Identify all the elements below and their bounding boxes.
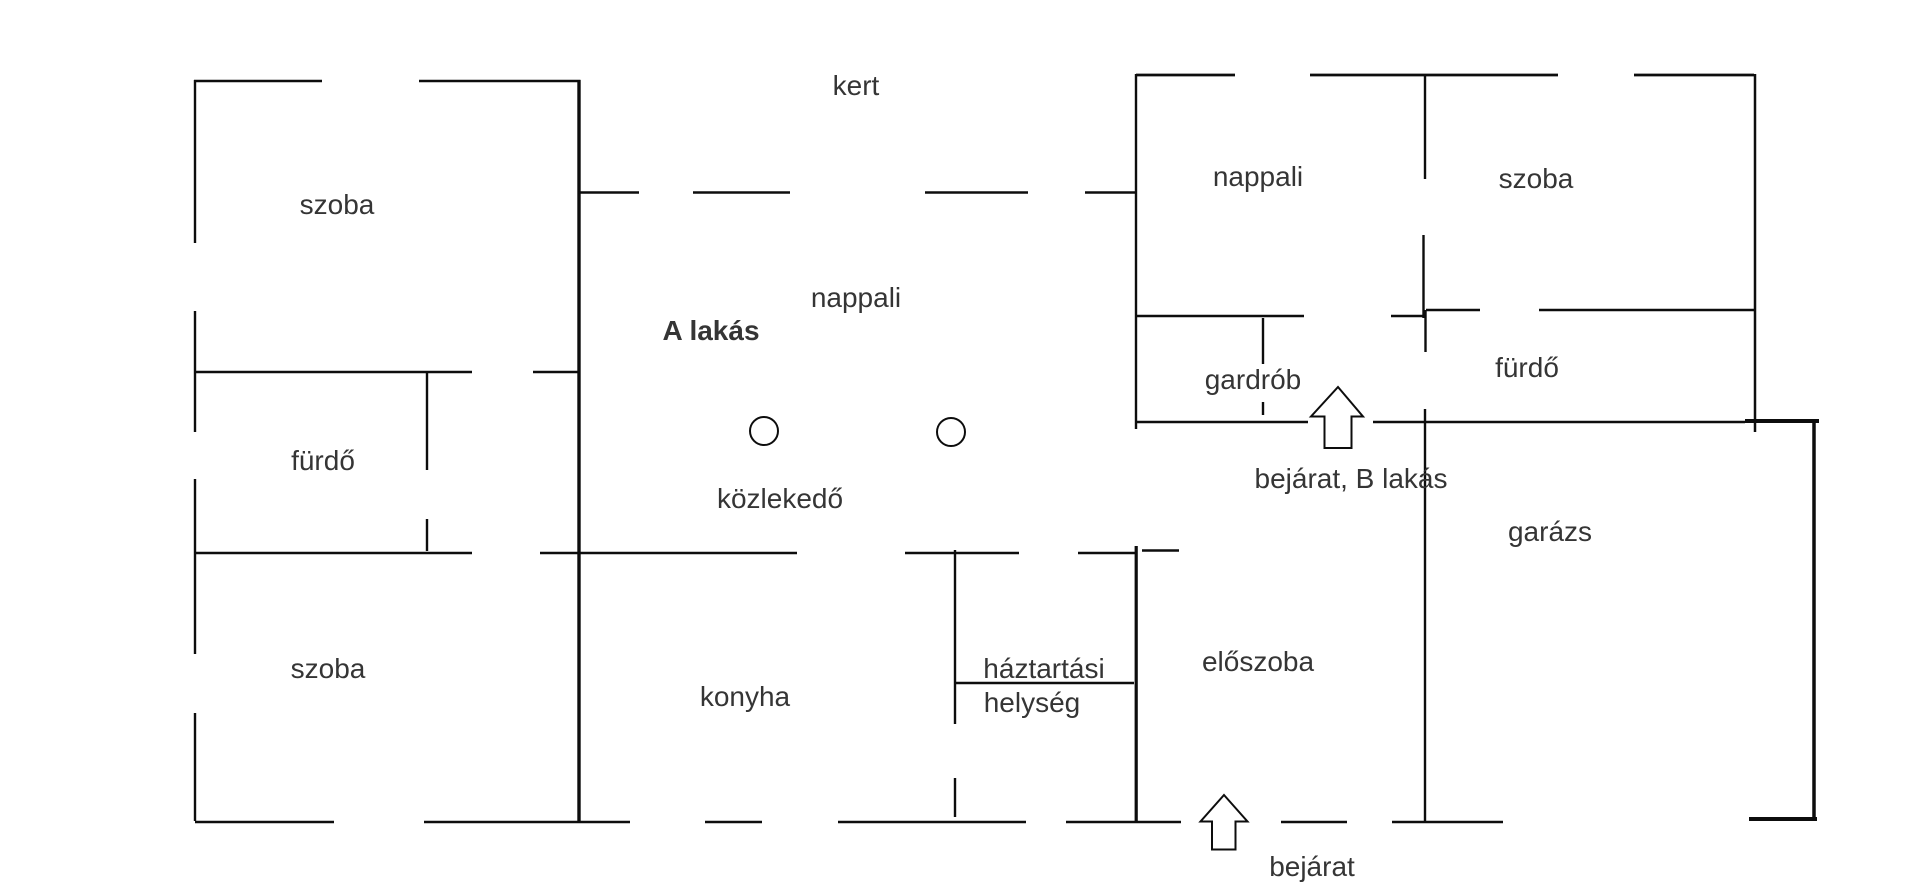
svg-text:fürdő: fürdő	[291, 445, 355, 476]
svg-text:szoba: szoba	[291, 653, 366, 684]
svg-text:háztartási: háztartási	[983, 653, 1104, 684]
svg-text:A lakás: A lakás	[662, 315, 759, 346]
svg-text:szoba: szoba	[300, 189, 375, 220]
svg-text:előszoba: előszoba	[1202, 646, 1315, 677]
svg-text:fürdő: fürdő	[1495, 352, 1559, 383]
svg-text:konyha: konyha	[700, 681, 791, 712]
svg-text:bejárat: bejárat	[1269, 851, 1355, 882]
svg-text:helység: helység	[984, 687, 1081, 718]
svg-text:nappali: nappali	[811, 282, 901, 313]
svg-text:szoba: szoba	[1499, 163, 1574, 194]
svg-text:gardrób: gardrób	[1205, 364, 1302, 395]
svg-text:kert: kert	[833, 70, 880, 101]
svg-text:garázs: garázs	[1508, 516, 1592, 547]
svg-text:nappali: nappali	[1213, 161, 1303, 192]
svg-text:bejárat, B lakás: bejárat, B lakás	[1255, 463, 1448, 494]
svg-text:közlekedő: közlekedő	[717, 483, 843, 514]
